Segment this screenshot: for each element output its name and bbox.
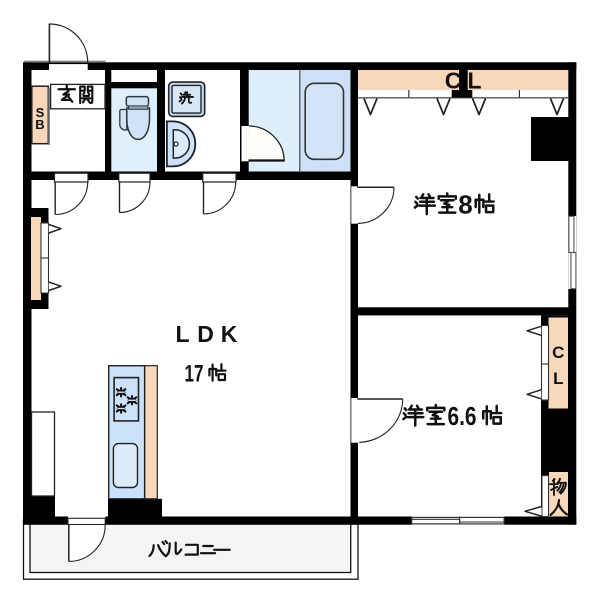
svg-text:C: C [445,68,462,94]
svg-text:8: 8 [458,190,472,220]
svg-text:6.6: 6.6 [448,401,477,431]
svg-text:L: L [175,321,189,347]
svg-text:B: B [35,117,44,132]
svg-text:D: D [197,321,214,347]
svg-text:C: C [552,343,564,362]
svg-text:17: 17 [185,361,204,388]
svg-text:L: L [553,369,563,388]
svg-text:L: L [467,68,481,94]
svg-text:K: K [221,321,238,347]
